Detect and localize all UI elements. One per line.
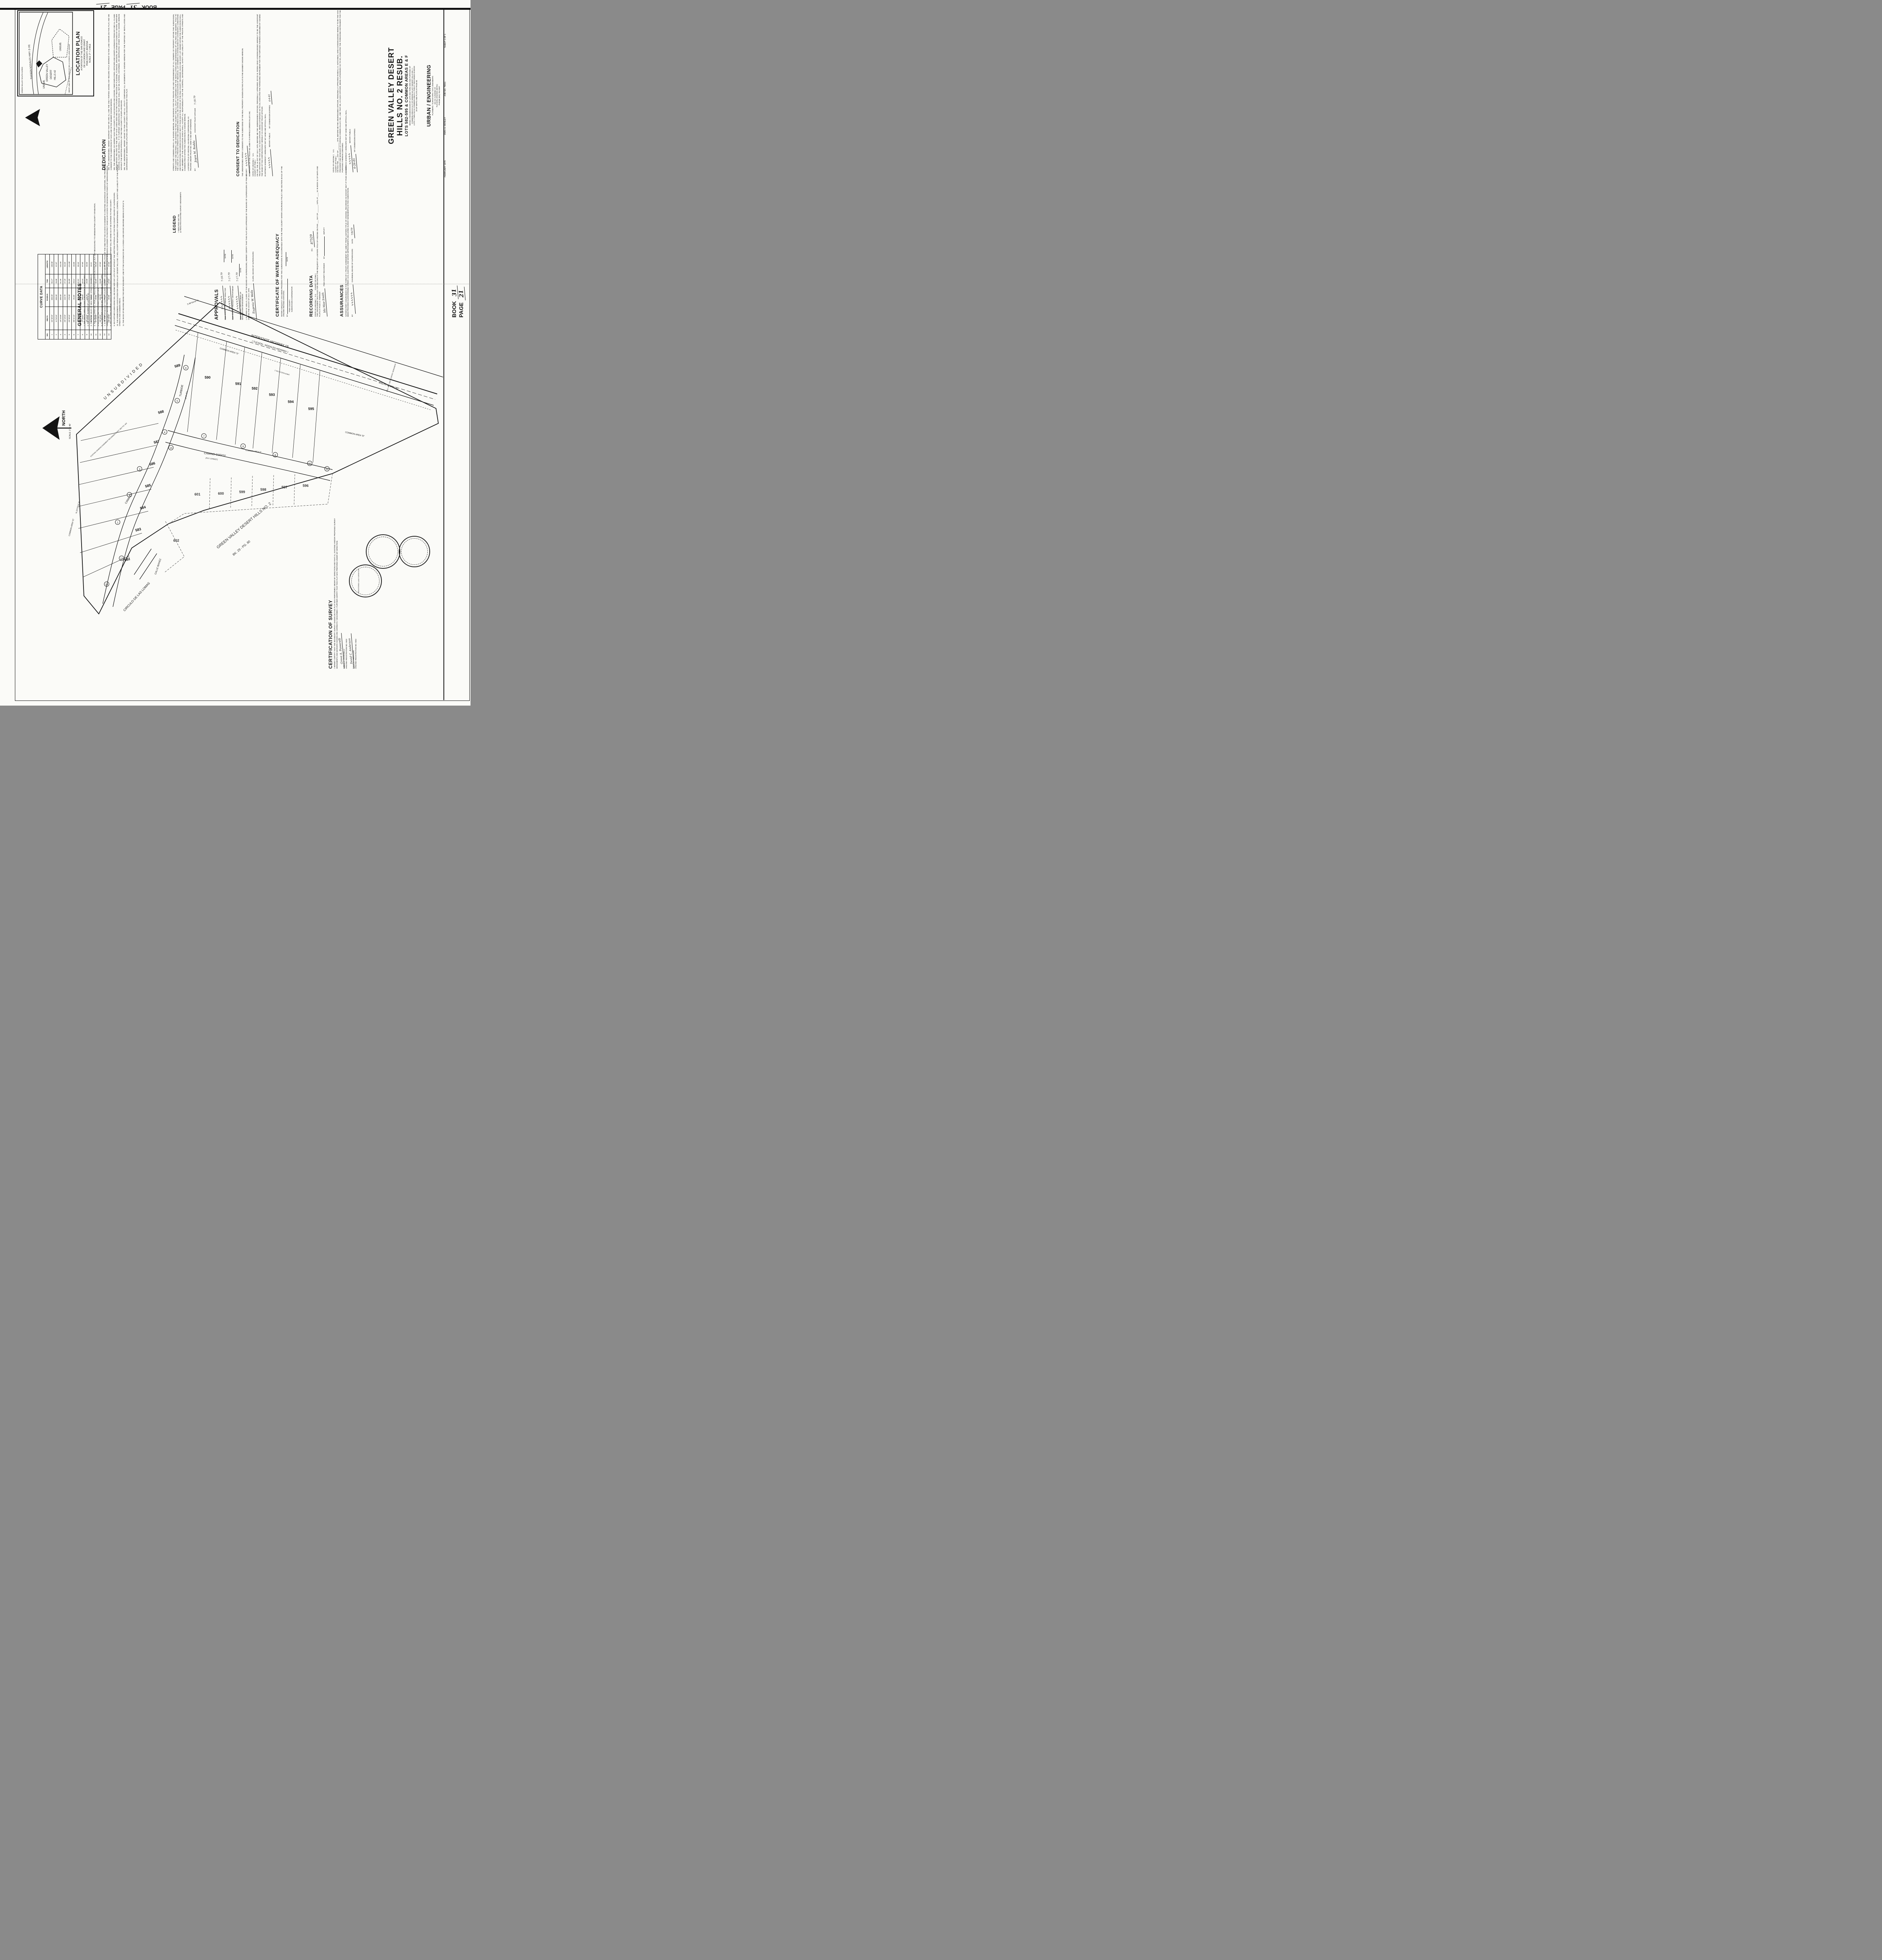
common-area-e-label-2: COMMON AREA "E" — [345, 431, 365, 437]
plat-scan-sheet: BOOK 31 PAGE 21 TUCSON NOGALES HWY. (I-1… — [0, 0, 470, 706]
lot-number: 588 — [158, 409, 164, 415]
plat-map: NORTH SCALE: 1" = 40' 582 583 584 585 58… — [0, 0, 470, 706]
curve-bubble: 11 — [326, 468, 329, 471]
context-lot-number: 597 — [282, 485, 287, 489]
context-lot-number: 602 — [173, 539, 179, 543]
grading-easement-note: EXISTING GRADING EASEMENT RECORDED IN DK… — [90, 422, 127, 457]
adjacent-plat-reference: BK. 29 - PG. 80 — [232, 539, 251, 556]
adjacent-plat-name: GREEN VALLEY DESERT HILLS NO. 2 — [216, 501, 272, 550]
curve-bubble: 1 — [117, 522, 118, 524]
context-lot-number: 600 — [218, 492, 224, 495]
unsubdivided-label: UNSUBDIVIDED — [103, 361, 145, 401]
street-label-godoy-pvt: (PVT. STREET) — [205, 457, 218, 461]
lot-number: 592 — [252, 387, 258, 390]
lot-number: 584 — [140, 505, 146, 510]
context-lot-number: 601 — [194, 492, 200, 496]
north-arrow: NORTH SCALE: 1" = 40' — [42, 410, 71, 440]
curve-bubble: 4 — [164, 432, 165, 434]
common-area-f-label: COMMON AREA "F" — [245, 449, 262, 453]
context-lot-number: 596 — [303, 484, 309, 488]
context-lot-number: 599 — [239, 490, 245, 494]
street-label-circulo: CIRCULO DE LAS LOMAS — [123, 581, 151, 612]
street-label-turbide-pvt: (PVT. ST.) — [185, 391, 188, 399]
lot-number: 587 — [153, 439, 160, 445]
no-access-easement-label: 1' NO ACCESS ESMT. — [274, 369, 290, 376]
street-label-turbide: TURBIDE — [179, 385, 184, 397]
location-plan-north-arrow — [25, 109, 40, 126]
common-area-e-label-3: COMMON AREA "E" — [68, 518, 75, 536]
lot-number: 585 — [145, 483, 151, 488]
street-label-calle-ibanez: CALLE IBANEZ — [154, 558, 162, 575]
north-label: NORTH — [62, 410, 66, 426]
curve-bubble: 12 — [120, 558, 123, 560]
curve-bubble: 6 — [185, 367, 187, 370]
lot-number: 594 — [288, 400, 294, 404]
map-scale-label: SCALE: 1" = 40' — [69, 423, 71, 439]
curve-bubble: 14 — [170, 447, 173, 450]
lot-number: 582 — [124, 557, 131, 562]
curve-bubble: 7 — [203, 436, 205, 438]
curve-bubble: 10 — [309, 463, 311, 465]
lot-number: 595 — [308, 407, 314, 411]
curve-bubble: 8 — [242, 446, 244, 448]
lot-number: 589 — [174, 363, 181, 368]
lot-number: 590 — [205, 376, 211, 379]
context-lot-number: 598 — [260, 488, 266, 492]
lot-number: 583 — [135, 527, 142, 532]
lot-number: 593 — [269, 393, 275, 397]
top-bearing-label: S 89°04'44" E — [187, 299, 200, 305]
common-area-e-label-1: COMMON AREA "E" — [219, 347, 239, 356]
curve-bubble: 5 — [176, 400, 178, 403]
street-label-camino-godoy: CAMINO GODOY — [204, 452, 226, 457]
lot-number: 586 — [149, 461, 156, 466]
curve-bubbles: 1 2 3 4 5 6 7 8 9 10 11 12 13 14 — [104, 365, 329, 586]
subdivision-boundary — [76, 303, 438, 614]
curve-bubble: 13 — [105, 584, 108, 586]
lot-number: 591 — [235, 382, 241, 386]
